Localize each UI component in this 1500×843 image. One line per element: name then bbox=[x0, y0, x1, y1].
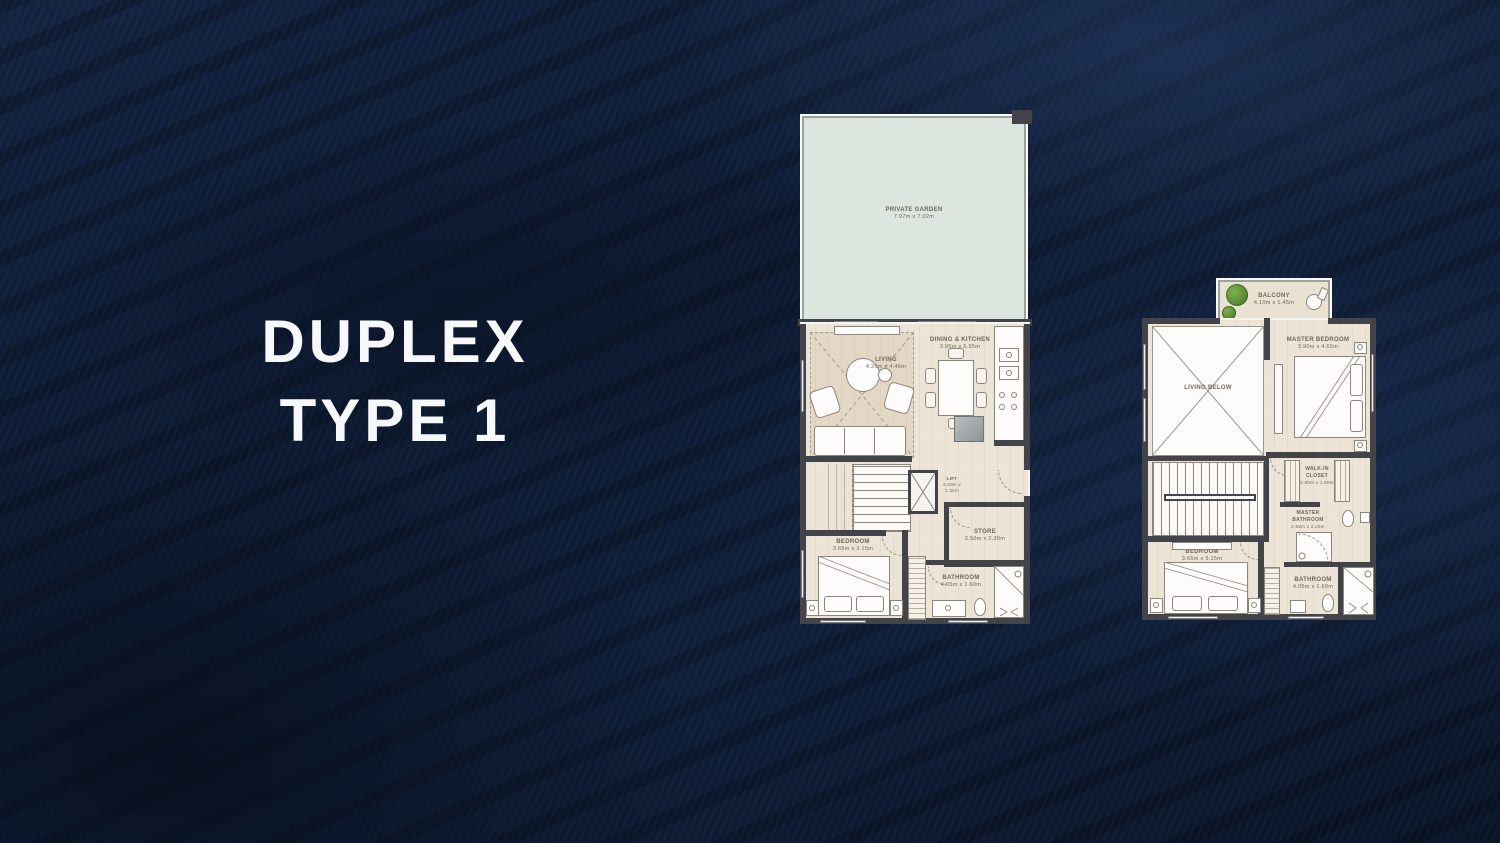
wardrobe bbox=[1284, 460, 1300, 502]
sink-basin bbox=[945, 605, 951, 611]
wall bbox=[944, 502, 1024, 507]
room-label-bathroom: BATHROOM 4.05m x 1.60m bbox=[928, 574, 994, 590]
wardrobe bbox=[1264, 567, 1280, 615]
room-label-balcony: BALCONY 4.10m x 1.45m bbox=[1234, 292, 1314, 308]
sink bbox=[1290, 600, 1306, 613]
upper-level-floor-plan: BALCONY 4.10m x 1.45m LIVING BELOW MASTE… bbox=[1138, 280, 1380, 622]
stove-burner bbox=[1011, 392, 1017, 398]
dining-chair bbox=[925, 392, 936, 408]
room-label-store: STORE 2.50m x 2.30m bbox=[948, 528, 1022, 544]
room-label-bathroom-upper: BATHROOM 4.05m x 1.60m bbox=[1282, 576, 1344, 592]
lamp bbox=[1357, 344, 1363, 350]
window bbox=[820, 620, 866, 623]
room-label-private-garden: PRIVATE GARDEN 7.97m x 7.02m bbox=[802, 206, 1026, 222]
shower-fan-lines bbox=[1296, 532, 1332, 562]
wall bbox=[1012, 110, 1032, 124]
wall bbox=[1280, 502, 1320, 507]
wardrobe bbox=[908, 556, 926, 620]
room-label-bedroom: BEDROOM 3.65m x 3.15m bbox=[808, 538, 898, 554]
wall bbox=[994, 440, 1030, 446]
wall bbox=[800, 530, 886, 536]
wall bbox=[1024, 324, 1030, 470]
room-label-living: LIVING 4.26m x 4.46m bbox=[854, 356, 918, 372]
page-title: DUPLEX TYPE 1 bbox=[170, 302, 620, 460]
toilet bbox=[974, 598, 986, 616]
stairs-under-dashed bbox=[828, 464, 853, 532]
lamp bbox=[1251, 602, 1257, 608]
room-label-master-bathroom: MASTER BATHROOM 2.65m x 2.25m bbox=[1284, 510, 1332, 530]
window bbox=[1143, 344, 1146, 390]
pillow bbox=[1172, 596, 1202, 611]
wall bbox=[1264, 456, 1269, 542]
pillow bbox=[856, 596, 884, 612]
room-label-living-below: LIVING BELOW bbox=[1152, 384, 1264, 392]
title-line-1: DUPLEX bbox=[170, 302, 620, 381]
kitchen-appliance bbox=[954, 416, 984, 442]
dresser bbox=[1274, 364, 1283, 434]
window bbox=[1168, 616, 1218, 619]
dining-table bbox=[938, 360, 974, 416]
pillow bbox=[1208, 596, 1238, 611]
wall bbox=[1142, 318, 1220, 324]
toilet bbox=[1342, 510, 1354, 527]
kitchen-counter bbox=[994, 326, 1024, 444]
lift-cross-lines bbox=[911, 473, 935, 511]
sink bbox=[1360, 512, 1370, 523]
dining-chair bbox=[925, 368, 936, 384]
dining-chair bbox=[948, 348, 964, 359]
dining-chair bbox=[976, 368, 987, 384]
window bbox=[1371, 354, 1374, 412]
title-line-2: TYPE 1 bbox=[170, 381, 620, 460]
window bbox=[801, 360, 804, 412]
wall bbox=[926, 560, 1030, 565]
room-label-lift: LIFT 2.00m x 1.35m bbox=[938, 476, 966, 494]
lamp bbox=[809, 605, 815, 611]
pillow bbox=[824, 596, 852, 612]
stove-burner bbox=[999, 392, 1005, 398]
sofa-cushion-line bbox=[874, 428, 875, 454]
window bbox=[801, 550, 804, 598]
dining-chair bbox=[976, 392, 987, 408]
tv-console bbox=[1172, 542, 1232, 550]
lamp bbox=[893, 605, 899, 611]
sink-drain bbox=[1006, 370, 1012, 376]
shower-lines bbox=[994, 566, 1024, 618]
lamp bbox=[1357, 442, 1363, 448]
staircase bbox=[853, 464, 911, 532]
stove-burner bbox=[1011, 404, 1017, 410]
plant-icon bbox=[1222, 306, 1236, 320]
sofa-cushion-line bbox=[844, 428, 845, 454]
wall bbox=[1148, 456, 1264, 461]
pillow bbox=[1350, 364, 1363, 396]
window bbox=[1143, 398, 1146, 442]
pillow bbox=[1350, 400, 1363, 432]
wall bbox=[1328, 318, 1376, 324]
tv-console bbox=[834, 326, 900, 335]
sofa bbox=[814, 426, 906, 456]
stove-burner bbox=[999, 404, 1005, 410]
wardrobe bbox=[1334, 460, 1350, 502]
lamp bbox=[1153, 602, 1159, 608]
stair-handrail bbox=[1164, 494, 1256, 501]
wall bbox=[800, 456, 912, 462]
room-label-walk-in-closet: WALK-IN CLOSET 2.80m x 1.60m bbox=[1300, 466, 1334, 486]
shower-lines bbox=[1343, 567, 1374, 615]
window bbox=[1288, 616, 1324, 619]
window bbox=[948, 620, 988, 623]
room-label-master-bedroom: MASTER BEDROOM 3.90m x 4.65m bbox=[1268, 336, 1368, 352]
marketing-slide: { "title": { "line1": "DUPLEX", "line2":… bbox=[0, 0, 1500, 843]
toilet bbox=[1322, 594, 1334, 612]
sink-drain bbox=[1006, 352, 1012, 358]
lower-level-floor-plan: PRIVATE GARDEN 7.97m x 7.02m LIVING 4.26… bbox=[798, 110, 1032, 628]
